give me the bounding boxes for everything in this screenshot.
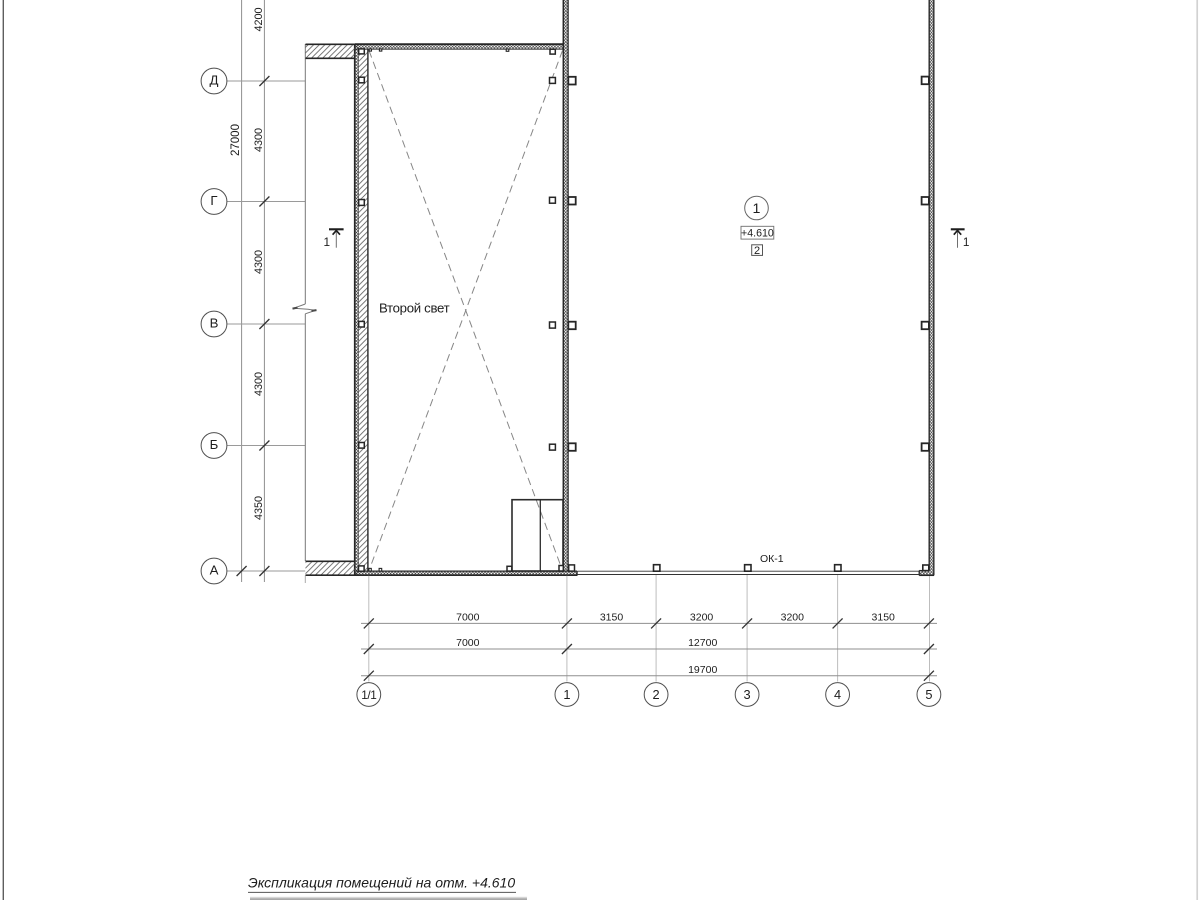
svg-text:1: 1 bbox=[753, 201, 761, 217]
svg-text:27000: 27000 bbox=[230, 124, 242, 156]
svg-text:4200: 4200 bbox=[253, 7, 265, 31]
svg-text:4350: 4350 bbox=[253, 496, 265, 520]
svg-text:19700: 19700 bbox=[688, 664, 717, 676]
svg-text:4300: 4300 bbox=[253, 250, 265, 274]
svg-text:ОК-1: ОК-1 bbox=[760, 553, 784, 565]
svg-text:4: 4 bbox=[834, 687, 841, 702]
svg-text:Д: Д bbox=[210, 73, 219, 88]
svg-text:3150: 3150 bbox=[872, 612, 896, 624]
svg-text:7000: 7000 bbox=[456, 637, 480, 649]
svg-text:4300: 4300 bbox=[253, 372, 265, 396]
svg-text:2: 2 bbox=[653, 687, 660, 702]
svg-text:7000: 7000 bbox=[456, 612, 480, 624]
svg-text:Г: Г bbox=[210, 193, 217, 208]
svg-text:А: А bbox=[210, 563, 219, 578]
svg-text:Б: Б bbox=[210, 437, 219, 452]
svg-text:1: 1 bbox=[563, 687, 570, 702]
svg-text:3150: 3150 bbox=[600, 612, 624, 624]
svg-text:3200: 3200 bbox=[690, 612, 714, 624]
svg-text:В: В bbox=[210, 316, 219, 331]
svg-text:1: 1 bbox=[963, 235, 970, 249]
svg-text:Второй свет: Второй свет bbox=[379, 300, 450, 315]
svg-text:5: 5 bbox=[925, 687, 932, 702]
svg-text:Экспликация помещений на отм.: Экспликация помещений на отм. +4.610 bbox=[248, 875, 515, 891]
svg-text:2: 2 bbox=[754, 245, 760, 257]
svg-text:1: 1 bbox=[323, 235, 330, 249]
svg-text:4300: 4300 bbox=[253, 128, 265, 152]
svg-text:3200: 3200 bbox=[781, 612, 805, 624]
svg-text:12700: 12700 bbox=[688, 637, 717, 649]
svg-text:3: 3 bbox=[744, 687, 751, 702]
svg-text:1/1: 1/1 bbox=[361, 688, 376, 702]
svg-text:+4.610: +4.610 bbox=[741, 228, 774, 240]
